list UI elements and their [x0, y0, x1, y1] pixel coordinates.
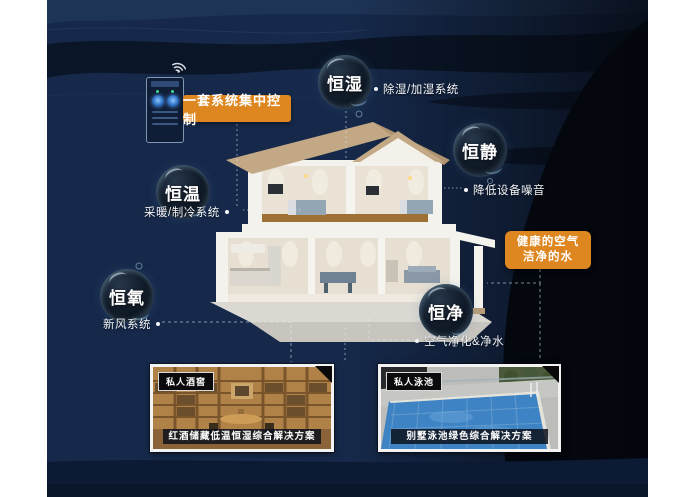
bubble-label: 恒温	[165, 180, 201, 205]
note-text: 除湿/加湿系统	[383, 81, 459, 97]
poster-content: 一套系统集中控制 健康的空气 洁净的水 恒湿 恒静 恒温 恒氧 恒净 除湿/加湿…	[47, 0, 648, 497]
note-text: 降低设备噪音	[473, 182, 545, 198]
panel-row	[152, 117, 178, 119]
bubble-constant-oxygen: 恒氧	[100, 269, 154, 323]
note-noise-reduction: 降低设备噪音	[464, 182, 545, 198]
pool-caption: 别墅泳池绿色综合解决方案	[391, 429, 548, 444]
poster-canvas: 一套系统集中控制 健康的空气 洁净的水 恒湿 恒静 恒温 恒氧 恒净 除湿/加湿…	[0, 0, 700, 497]
healthy-air-line1: 健康的空气	[517, 235, 580, 250]
panel-status-leds	[150, 90, 180, 93]
bubble-constant-humidity: 恒湿	[318, 55, 372, 109]
bubble-label: 恒静	[462, 138, 498, 163]
corner-ribbon	[315, 366, 332, 383]
note-text: 空气净化&净水	[424, 333, 504, 349]
bubble-constant-purity: 恒净	[419, 284, 473, 338]
note-text: 新风系统	[103, 316, 151, 332]
panel-dials	[150, 95, 180, 107]
bullet-dot	[156, 322, 160, 326]
bullet-dot	[464, 188, 468, 192]
note-text: 采暖/制冷系统	[144, 204, 220, 220]
bullet-dot	[415, 339, 419, 343]
healthy-air-line2: 洁净的水	[523, 250, 573, 265]
note-heating-cooling-system: 采暖/制冷系统	[144, 204, 229, 220]
smart-control-panel	[146, 77, 184, 143]
panel-row	[152, 111, 178, 113]
dial-right	[167, 95, 179, 107]
bullet-dot	[225, 210, 229, 214]
wine-cellar-tag: 私人酒窖	[158, 372, 214, 391]
dial-left	[152, 95, 164, 107]
note-fresh-air-system: 新风系统	[103, 316, 160, 332]
bubble-constant-quiet: 恒静	[453, 123, 507, 177]
bubble-label: 恒氧	[109, 284, 145, 309]
healthy-air-badge: 健康的空气 洁净的水	[505, 231, 591, 269]
bubble-label: 恒净	[428, 299, 464, 324]
corner-ribbon	[542, 366, 559, 383]
bubble-label: 恒湿	[327, 70, 363, 95]
note-air-water-purification: 空气净化&净水	[415, 333, 504, 349]
wifi-icon	[169, 58, 187, 73]
pool-tag: 私人泳池	[386, 372, 442, 391]
note-dehumidify-system: 除湿/加湿系统	[374, 81, 459, 97]
panel-row	[152, 123, 178, 125]
card-wine-cellar: 私人酒窖 红酒储藏低温恒湿综合解决方案	[150, 364, 334, 452]
central-control-badge: 一套系统集中控制	[183, 95, 291, 122]
wine-cellar-caption: 红酒储藏低温恒湿综合解决方案	[163, 429, 321, 444]
bullet-dot	[374, 87, 378, 91]
panel-header	[151, 81, 179, 87]
central-control-label: 一套系统集中控制	[183, 90, 291, 128]
card-private-pool: 私人泳池 别墅泳池绿色综合解决方案	[378, 364, 561, 452]
